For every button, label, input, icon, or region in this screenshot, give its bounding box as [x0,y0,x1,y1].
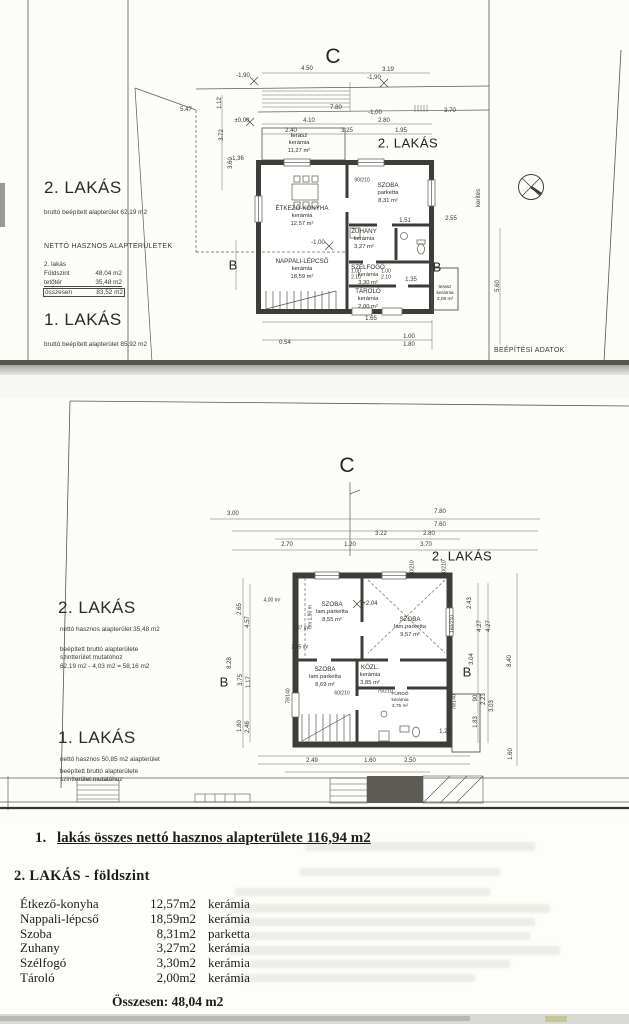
dimension-label: 1.00 [403,334,415,340]
area-row-osszesen: összesen 83,52 m2 [43,288,125,297]
door-size-label: 60/210 [334,692,349,697]
level-label: ±0,00 [235,118,250,124]
dimension-label: 90 [473,695,479,702]
bleed-through-text [250,932,530,940]
dimension-label: 7.80 [330,105,342,111]
dimension-label: 4.27 [477,620,483,632]
door-size-label: 75/210 [377,690,392,695]
room-label-etkezo-konyha: ÉTKEZŐ-KONYHA kerámia 12,57 m² [276,205,329,228]
lakas1-subtitle: nettó hasznos 50,85 m2 alapterület [60,756,160,763]
netto-header: NETTÓ HASZNOS ALAPTERÜLETEK [44,243,172,250]
sheet-2-attic-floor: 2. LAKÁS nettó hasznos alapterület 35,48… [0,398,629,822]
dimension-label: 3.00 [227,511,239,517]
dimension-label: 2.65 [237,603,243,615]
dimension-label: 3.70 [444,108,456,114]
lakas2-subtitle: bruttó beépített alapterület 62,19 m2 [44,209,147,216]
area-note-label: 2,55 m² [292,646,309,651]
table-row: Zuhany 3,27m2 kerámia [20,940,270,955]
section-marker-b-right: B [463,665,472,680]
table-row: Szélfogó 3,30m2 kerámia [20,955,270,970]
bleed-through-text [230,904,550,913]
bleed-through-text [250,960,510,968]
room-label-szoba: SZOBA parketta 8,31 m² [378,182,399,205]
dimension-label: 3.03 [489,700,495,712]
lakas2-title: 2. LAKÁS [44,178,122,198]
table-row: Étkező-konyha 12,57m2 kerámia [20,896,270,911]
bleed-through-text [230,946,560,955]
table-row: Tároló 2,00m2 kerámia [20,970,270,985]
elevation-dark-block [367,776,423,803]
lakas1-title: 1. LAKÁS [44,310,122,330]
dimension-label: 4.50 [301,66,313,72]
dimension-label: 1.95 [395,128,407,134]
scan-artifact [0,183,5,227]
window-size-label: 78/140 [453,694,458,709]
sheet-3-summary: 1. lakás összes nettó hasznos alapterüle… [0,822,629,1014]
section-marker-b-left: B [220,675,229,690]
dimension-label: 3.70 [420,542,432,548]
dimension-label: 3.25 [341,128,353,134]
section-marker-c: C [325,45,340,69]
bottom-scan-strip [0,1014,629,1024]
dimension-label: 2.23 [481,693,487,705]
dimension-label: 1.51 [399,218,411,224]
dimension-label: 2.55 [445,216,457,222]
dimension-label: 4.27 [486,620,492,632]
scan-shadow [0,365,629,375]
level-label: -1,36 [230,156,244,162]
summary-line-number: 1. [35,830,46,847]
level-label: -1,00 [311,240,325,246]
kerites-label: kerítés [476,189,482,207]
room-label-terasz-front: terasz kerámia 11,27 m² [288,132,310,155]
door-size-label: 90/210 [411,560,416,575]
bottom-scan-strip-dark [0,1016,470,1021]
lakas2-subtitle: nettó hasznos alapterület 35,48 m2 [60,626,160,633]
dimension-label: 1.35 [405,277,417,283]
area-row-foldszint: Földszint 48,04 m2 [44,270,122,277]
beepitesi-adatok-label: BEÉPÍTÉSI ADATOK [494,347,565,354]
area-row-tetoter: tetőtér 35,48 m2 [44,279,122,287]
dimension-label: 1.80 [403,342,415,348]
dimension-label: 1.83 [473,716,479,728]
lakas2-note-3: 62,19 m2 - 4,03 m2 = 58,16 m2 [60,663,149,670]
dimension-label: 2.80 [378,118,390,124]
dimension-label: 3.04 [469,653,475,665]
room-label-kozl: KÖZL. kerámia 3,85 m² [360,664,381,687]
dimension-label: 1.20 [344,542,356,548]
dimension-label: 1.60 [364,758,376,764]
dimension-label: 3.75 [238,674,244,686]
lakas1-note-1: beépített bruttó alapterülete [60,768,138,775]
section-heading-lakas2-foldszint: 2. LAKÁS - földszint [14,868,150,885]
room-label-terasz-side: terasz kerámia 2,08 m² [436,285,453,304]
dimension-label: 7.60 [434,522,446,528]
dimension-label: 4.10 [303,118,315,124]
level-label: +2,04 [362,601,377,607]
bleed-through-text [235,888,490,896]
dimension-label: 3.19 [382,67,394,73]
room-label-furdo: FÜRDŐ kerámia 3,75 m² [391,692,408,711]
level-label: -1,90 [367,75,381,81]
scanned-floorplan-document: 2. LAKÁS bruttó beépített alapterület 62… [0,0,629,1024]
plan-label-lakas2: 2. LAKÁS [378,136,438,151]
dimension-label: 0.54 [279,340,291,346]
dimension-label: 2.46 [245,721,251,733]
dimension-label: 1.60 [508,748,514,760]
dimension-label: 8.40 [507,655,513,667]
dimension-label: 2.50 [404,758,416,764]
dimension-label: 1.17 [246,676,252,688]
sheet-1-ground-floor: 2. LAKÁS bruttó beépített alapterület 62… [0,0,629,362]
dimension-label: 3.72 [219,129,225,141]
dimension-label: 5.47 [180,107,192,113]
table-row: Szoba 8,31m2 parketta [20,926,270,941]
room-label-tarolo: TÁROLÓ kerámia 2,00 m² [355,288,380,311]
dimension-label: 2.43 [467,597,473,609]
table-row: Nappali-lépcső 18,59m2 kerámia [20,911,270,926]
dimension-label: 2.80 [423,531,435,537]
dimension-label: 1.80 [237,720,243,732]
dimension-label: 8.28 [227,657,233,669]
bleed-through-text [235,974,475,982]
section-marker-c: C [339,454,354,478]
exterior-walls [259,163,432,312]
table-total: Összesen: 48,04 m2 [112,994,223,1010]
lakas2-title: 2. LAKÁS [58,598,136,618]
dimension-label: 5.60 [495,280,501,292]
door-size-label: 90/210 [354,179,369,184]
lakas1-title: 1. LAKÁS [58,728,136,748]
room-label-szoba-2: SZOBA lam.parketta 9,57 m² [394,616,426,639]
dimension-label: 3.22 [375,531,387,537]
dimension-label: 2.70 [281,542,293,548]
bleed-through-text [235,918,535,926]
window-size-label: 160/210 [451,615,456,633]
lakas1-note-2: szintterület mutatóhoz [60,776,123,783]
section-marker-b-left: B [229,258,238,273]
dimension-label: 2.49 [306,758,318,764]
room-label-szoba-1: SZOBA lam.parketta 8,55 m² [316,601,348,624]
room-label-zuhany: ZUHANY kerámia 3,27 m² [351,228,376,251]
area-note-label: 4,00 m² [264,599,281,604]
lakas1-subtitle: bruttó beépített alapterület 85,92 m2 [44,341,147,348]
summary-line-text: lakás összes nettó hasznos alapterülete … [57,830,371,847]
dimension-label: 4.57 [245,616,251,628]
bleed-through-text [300,868,500,876]
level-label: -1,00 [368,110,382,116]
dimension-label: 1.25 [439,729,451,735]
door-size-label: 90/210 [443,560,448,575]
door-size-label: 2.10 [351,276,361,281]
room-label-szoba-3: SZOBA lam.parketta 8,69 m² [309,666,341,689]
level-label: -1,90 [236,73,250,79]
dimension-label: 7.80 [434,509,446,515]
room-label-nappali-lepcso: NAPPALI-LÉPCSŐ kerámia 18,59 m² [276,258,329,281]
driveway-hatch [262,91,427,112]
lakas2-note-1: beépített bruttó alapterülete [60,646,138,653]
north-compass-icon [519,175,544,200]
scan-color-artifact [545,1016,567,1022]
dimension-label: 2.40 [285,128,297,134]
dimension-label: 1.12 [217,97,223,109]
headroom-label: bm 1,90 m [309,605,314,629]
section-marker-b-right: B [433,260,442,275]
door-size-label: 2.10 [381,276,391,281]
window-size-label: 78/140 [287,688,292,703]
lakas2-note-2: szintterület mutatóhoz [60,654,123,661]
netto-subheader: 2. lakás [44,261,66,268]
dimension-label: 1.65 [365,316,377,322]
